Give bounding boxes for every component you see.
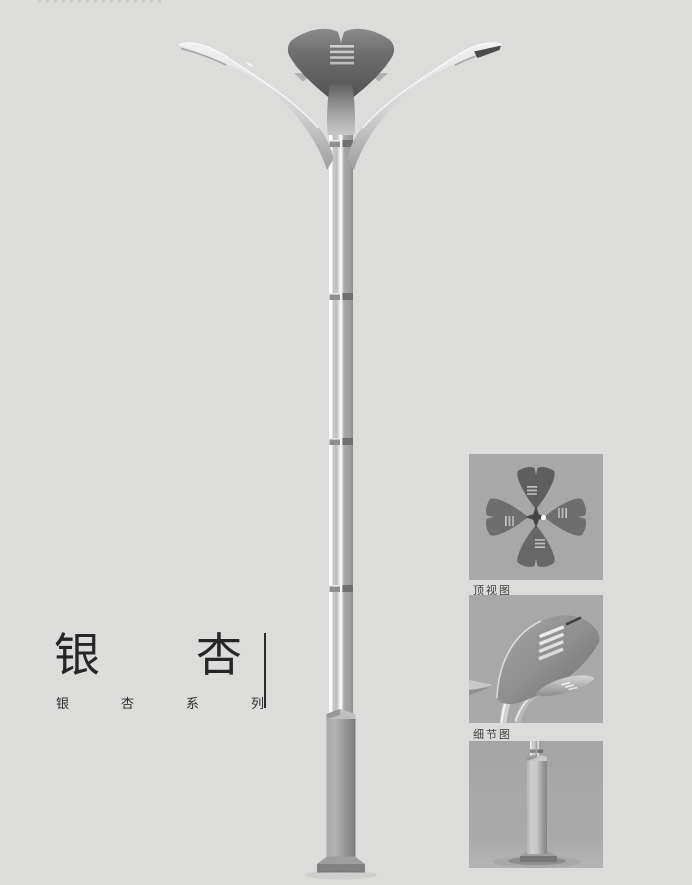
- detail-view-caption: 细节图: [473, 726, 512, 742]
- catalog-page: { "page": { "background_color": "#dcdcdb…: [0, 0, 692, 885]
- lamp-crown-detail-image: [469, 595, 603, 723]
- pole-collar: [327, 84, 355, 135]
- top-view-panel: [469, 454, 603, 580]
- series-subtitle: 银杏系列: [56, 693, 316, 712]
- detail-view-panel: [469, 595, 603, 723]
- lamp-base: [305, 709, 377, 880]
- base-view-panel: [469, 741, 603, 868]
- lamp-top-view-image: [469, 454, 603, 580]
- series-title: 银杏: [54, 628, 338, 683]
- lamp-base-image: [469, 741, 603, 868]
